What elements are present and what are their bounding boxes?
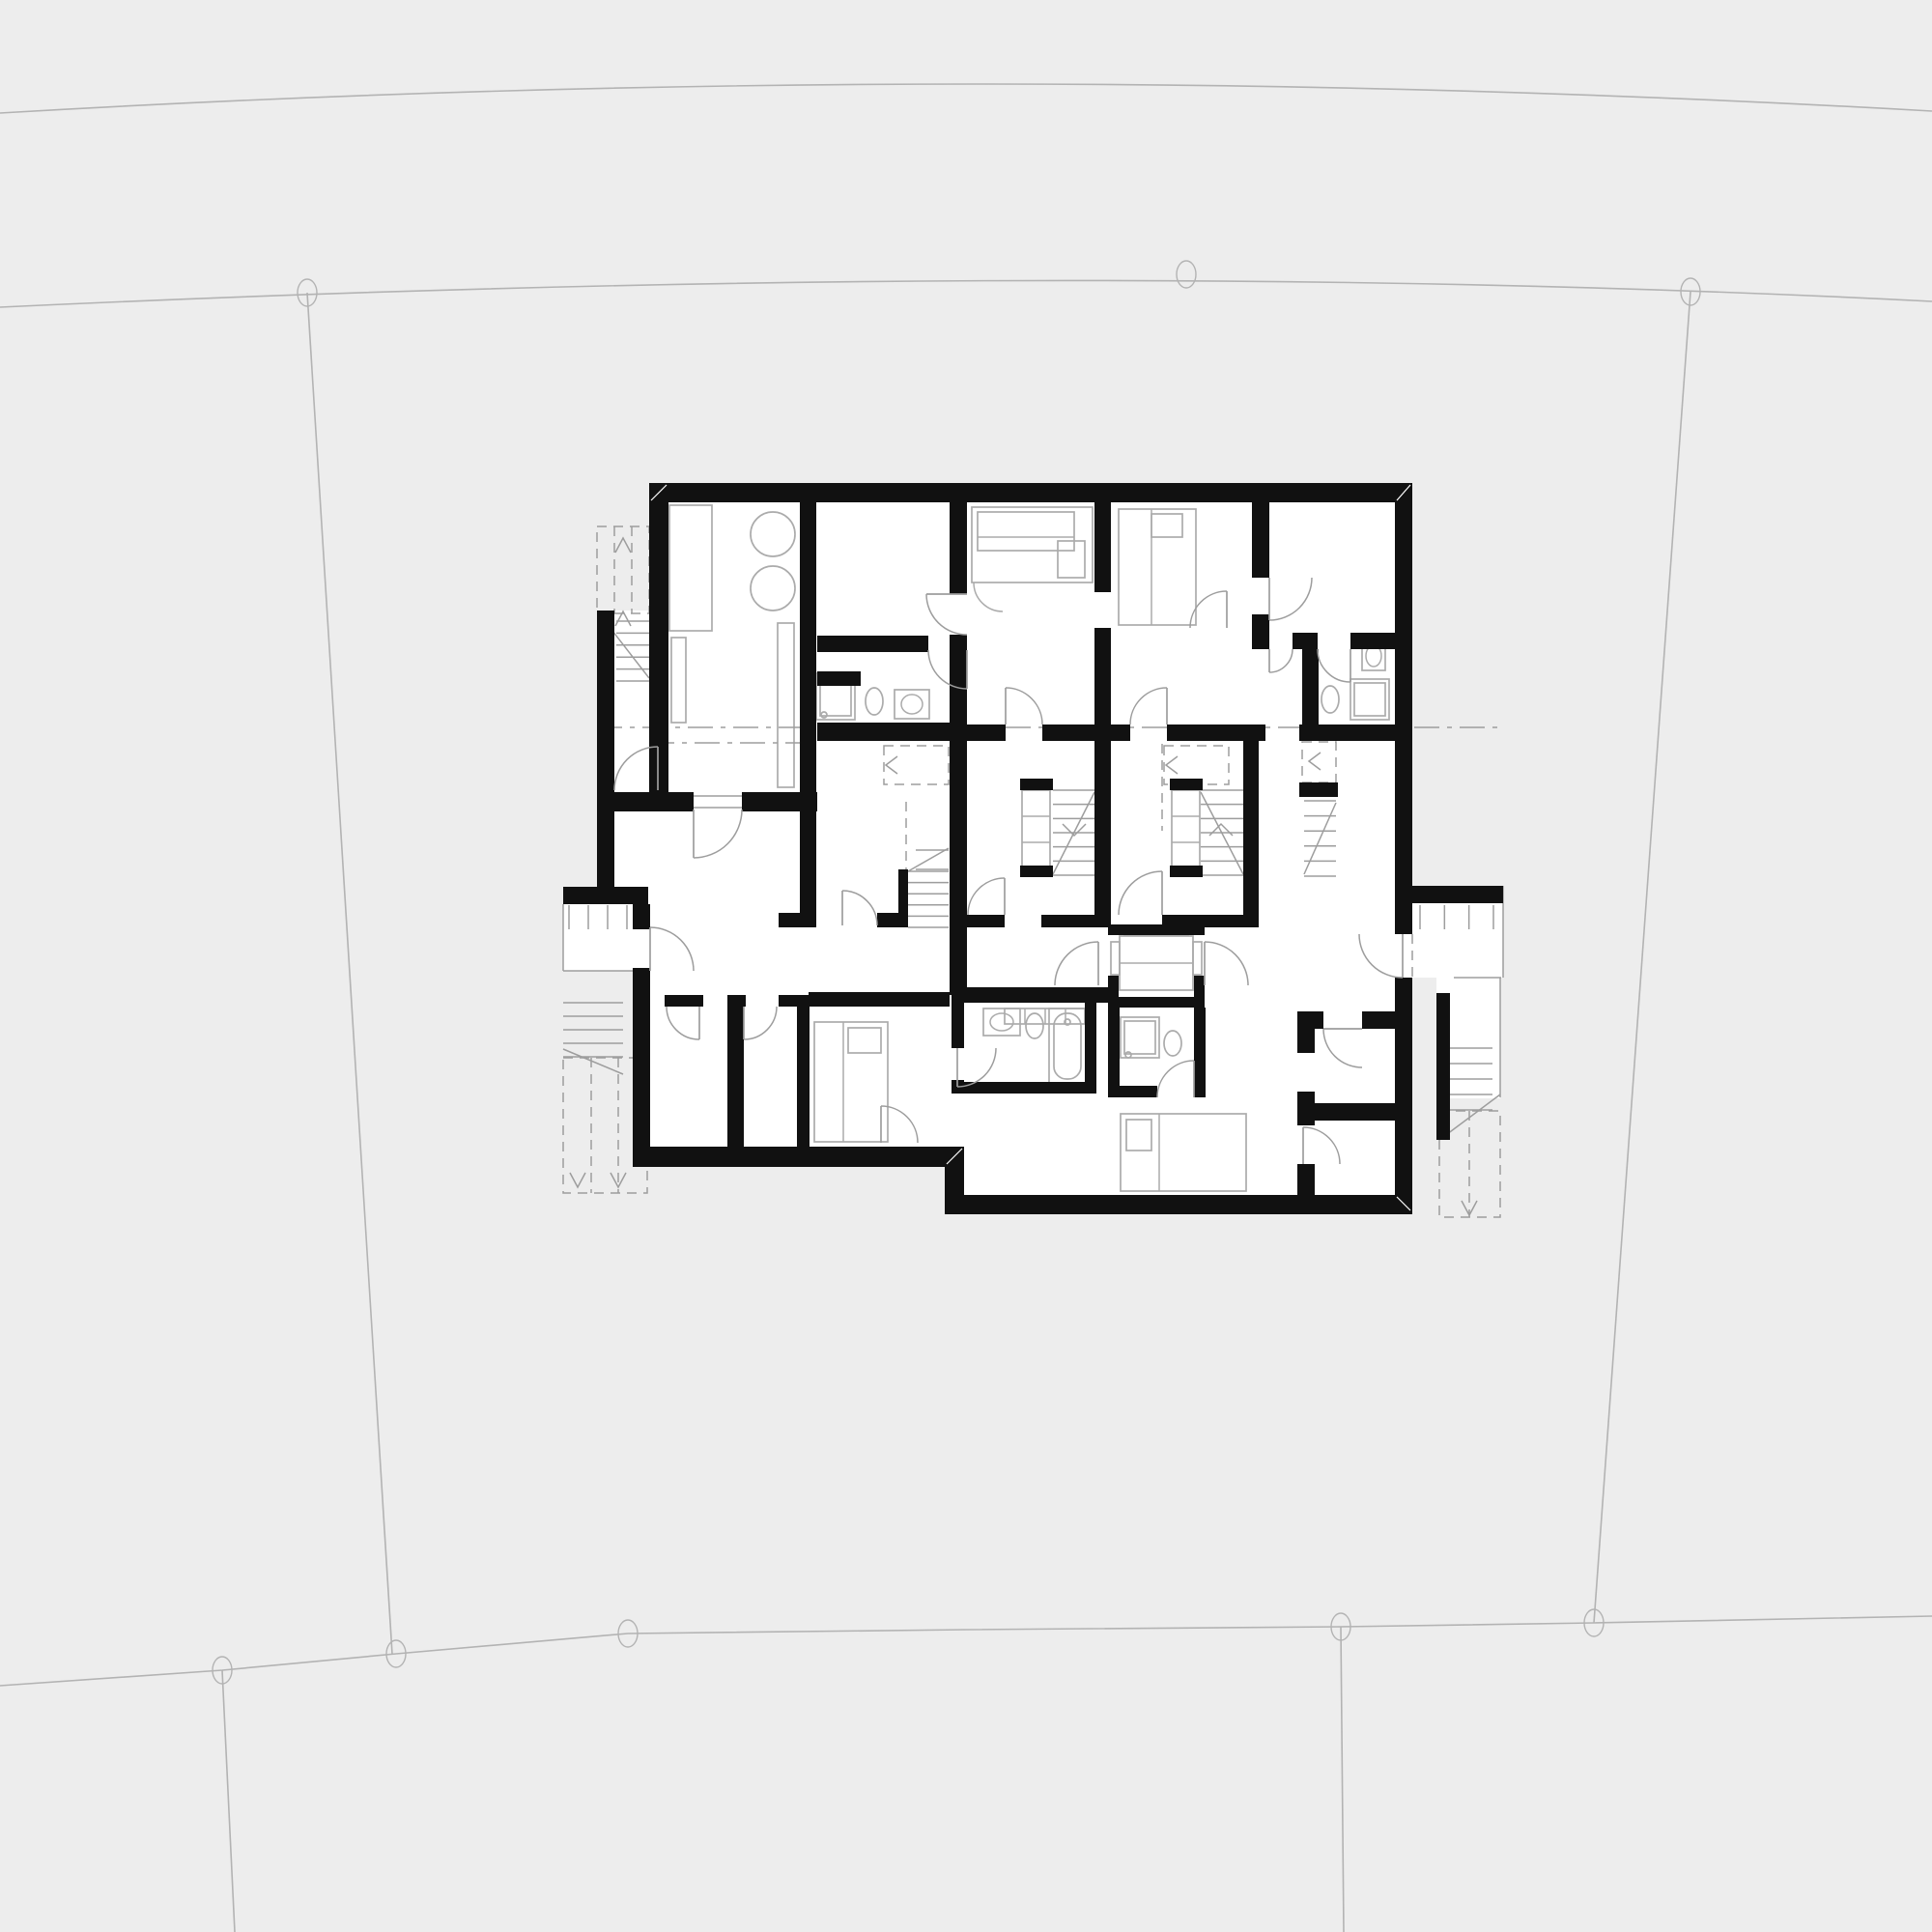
wall xyxy=(779,995,810,1007)
wall xyxy=(597,611,614,898)
wall xyxy=(1167,724,1243,741)
wall xyxy=(1395,483,1412,903)
wall xyxy=(1252,502,1269,578)
wall xyxy=(1194,1008,1206,1097)
wall xyxy=(1108,1086,1157,1097)
wall xyxy=(1194,924,1205,935)
wall xyxy=(1111,724,1130,741)
wall xyxy=(732,995,746,1007)
road-edge-arc xyxy=(0,84,1932,113)
parcel-east-line xyxy=(1594,292,1690,1623)
wall xyxy=(800,502,816,927)
wall xyxy=(597,792,694,811)
wall xyxy=(1243,724,1265,741)
wall xyxy=(950,741,967,995)
wall xyxy=(1108,924,1205,935)
wall xyxy=(1252,614,1269,649)
wall xyxy=(797,995,810,1147)
wall xyxy=(817,671,861,686)
wall xyxy=(817,636,928,652)
site-plan-page xyxy=(0,0,1932,1932)
wall xyxy=(1395,978,1412,1195)
wall xyxy=(1395,903,1412,934)
wall xyxy=(649,502,668,802)
wall xyxy=(898,869,908,927)
wall xyxy=(1350,633,1402,649)
wall xyxy=(633,1147,947,1167)
wall xyxy=(665,995,703,1007)
wall xyxy=(1170,866,1203,877)
wall xyxy=(809,992,950,1007)
wall xyxy=(1042,724,1094,741)
wall xyxy=(1094,502,1111,592)
wall xyxy=(1297,1103,1398,1121)
wall xyxy=(817,723,967,741)
parcel-south-line xyxy=(0,1616,1932,1686)
wall xyxy=(967,915,1005,927)
wall xyxy=(1085,1003,1096,1082)
survey-point xyxy=(1177,261,1196,288)
wall xyxy=(779,913,814,927)
wall xyxy=(1297,1029,1315,1053)
wall xyxy=(945,1195,1412,1214)
floor-plan-drawing xyxy=(0,0,1932,1932)
wall xyxy=(1293,633,1318,649)
wall xyxy=(967,724,1006,741)
stair-cut-line xyxy=(563,1049,623,1074)
wall xyxy=(563,887,648,904)
wall xyxy=(1395,886,1503,903)
direction-chevron xyxy=(570,1173,585,1187)
parcel-spur-right xyxy=(1341,1627,1344,1932)
wall xyxy=(1041,915,1094,927)
wall xyxy=(1108,924,1119,935)
wall xyxy=(1020,866,1053,877)
wall xyxy=(649,483,1412,502)
wall xyxy=(1108,1008,1120,1097)
wall xyxy=(1299,724,1402,741)
wall xyxy=(1108,997,1205,1008)
parcel-west-line xyxy=(307,293,392,1654)
wall xyxy=(727,995,744,1147)
wall xyxy=(1020,779,1053,790)
parcel-north-arc xyxy=(0,280,1932,307)
wall xyxy=(950,502,967,594)
parcel-spur-left xyxy=(222,1670,235,1932)
wall xyxy=(952,987,1108,1003)
wall xyxy=(1243,741,1259,927)
wall xyxy=(633,904,650,929)
wall xyxy=(1094,628,1111,927)
direction-chevron xyxy=(615,538,631,553)
wall xyxy=(633,968,650,1167)
wall xyxy=(964,1082,1096,1094)
wall xyxy=(1297,1011,1323,1029)
wall xyxy=(1297,1164,1315,1214)
wall xyxy=(1299,782,1338,797)
wall xyxy=(1436,993,1450,1140)
wall xyxy=(877,913,900,927)
wall xyxy=(1108,976,1119,1008)
wall xyxy=(1194,1086,1205,1097)
wall xyxy=(1194,976,1205,1008)
wall xyxy=(1302,649,1319,724)
floor-plate xyxy=(649,483,1412,1167)
wall xyxy=(1170,779,1203,790)
wall xyxy=(1362,1011,1395,1029)
